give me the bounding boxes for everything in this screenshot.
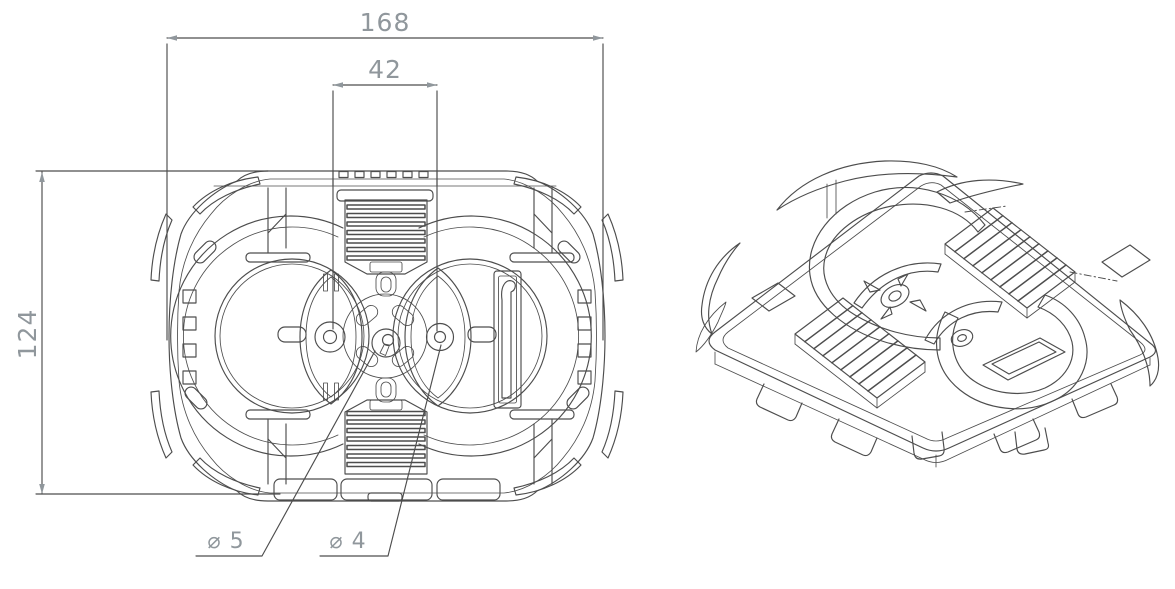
dim-label-center-hole-diameter: ⌀ 5 bbox=[196, 528, 256, 556]
dim-label-overall-width: 168 bbox=[339, 9, 431, 37]
dim-label-overall-height: 124 bbox=[14, 288, 42, 380]
iso-rim bbox=[709, 173, 1156, 467]
isometric-view-drawing bbox=[640, 0, 1175, 589]
iso-detail-plates bbox=[752, 245, 1150, 311]
splice-holders bbox=[345, 200, 427, 474]
leaf-retainers bbox=[300, 268, 471, 406]
latch-slot bbox=[494, 271, 521, 408]
side-holes bbox=[183, 290, 591, 384]
technical-drawing-canvas: 168 42 124 ⌀ 5 ⌀ 4 bbox=[0, 0, 1175, 589]
support-struts bbox=[246, 188, 574, 484]
dim-label-pivot-hole-diameter: ⌀ 4 bbox=[318, 528, 378, 556]
iso-leaf-retainers bbox=[854, 263, 1002, 349]
iso-latch-plate bbox=[983, 338, 1065, 380]
iso-corner-flaps bbox=[696, 161, 1159, 386]
dimension-lines bbox=[36, 35, 603, 556]
dim-label-hole-spacing: 42 bbox=[356, 56, 414, 84]
bottom-edge-latches bbox=[274, 479, 500, 501]
isometric-view bbox=[640, 0, 1175, 589]
fiber-retention-hooks bbox=[183, 239, 592, 412]
iso-center-hub bbox=[864, 274, 926, 319]
front-view: 168 42 124 ⌀ 5 ⌀ 4 bbox=[0, 0, 640, 589]
front-view-drawing bbox=[0, 0, 640, 589]
